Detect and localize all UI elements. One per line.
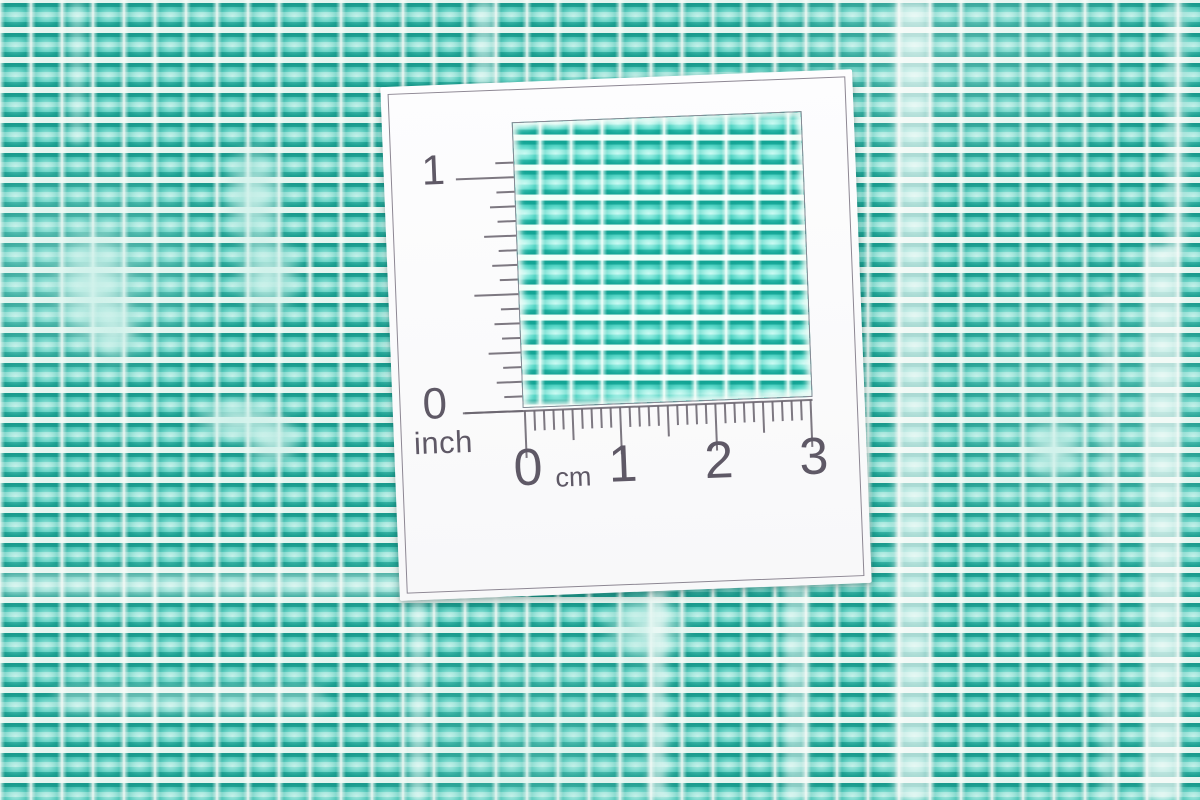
fabric-highlight-patch xyxy=(1018,415,1088,485)
fabric-warp-streak xyxy=(1166,0,1186,255)
inch-scale-label-1: 1 xyxy=(421,149,446,192)
cm-scale-label-3: 3 xyxy=(798,430,829,483)
fabric-weft-band xyxy=(0,572,420,596)
fabric-warp-streak xyxy=(474,0,494,92)
cm-unit-label: cm xyxy=(555,463,592,491)
fabric-warp-streak xyxy=(1144,245,1180,800)
fabric-warp-streak xyxy=(648,572,666,800)
measurement-card: 1 0 inch 0 1 2 3 cm xyxy=(380,69,871,601)
fabric-warp-streak xyxy=(894,0,930,800)
fabric-warp-streak xyxy=(70,0,84,145)
fabric-highlight-patch xyxy=(188,395,288,445)
cm-scale-label-2: 2 xyxy=(703,434,734,487)
fabric-warp-streak xyxy=(410,582,426,800)
fabric-weft-band xyxy=(55,685,325,713)
sample-cutout-window xyxy=(512,111,813,408)
fabric-warp-streak xyxy=(784,578,808,800)
fabric-warp-streak xyxy=(1100,295,1116,800)
rug-macro-photo: 1 0 inch 0 1 2 3 cm xyxy=(0,0,1200,800)
cm-scale-label-1: 1 xyxy=(608,438,639,491)
inch-unit-label: inch xyxy=(413,426,473,459)
cm-scale-label-0: 0 xyxy=(513,441,544,494)
fabric-through-window xyxy=(512,111,813,408)
fabric-highlight-patch xyxy=(598,588,693,668)
fabric-highlight-patch xyxy=(86,295,142,367)
fabric-highlight-patch xyxy=(230,228,304,323)
inch-scale-label-0: 0 xyxy=(422,382,448,427)
